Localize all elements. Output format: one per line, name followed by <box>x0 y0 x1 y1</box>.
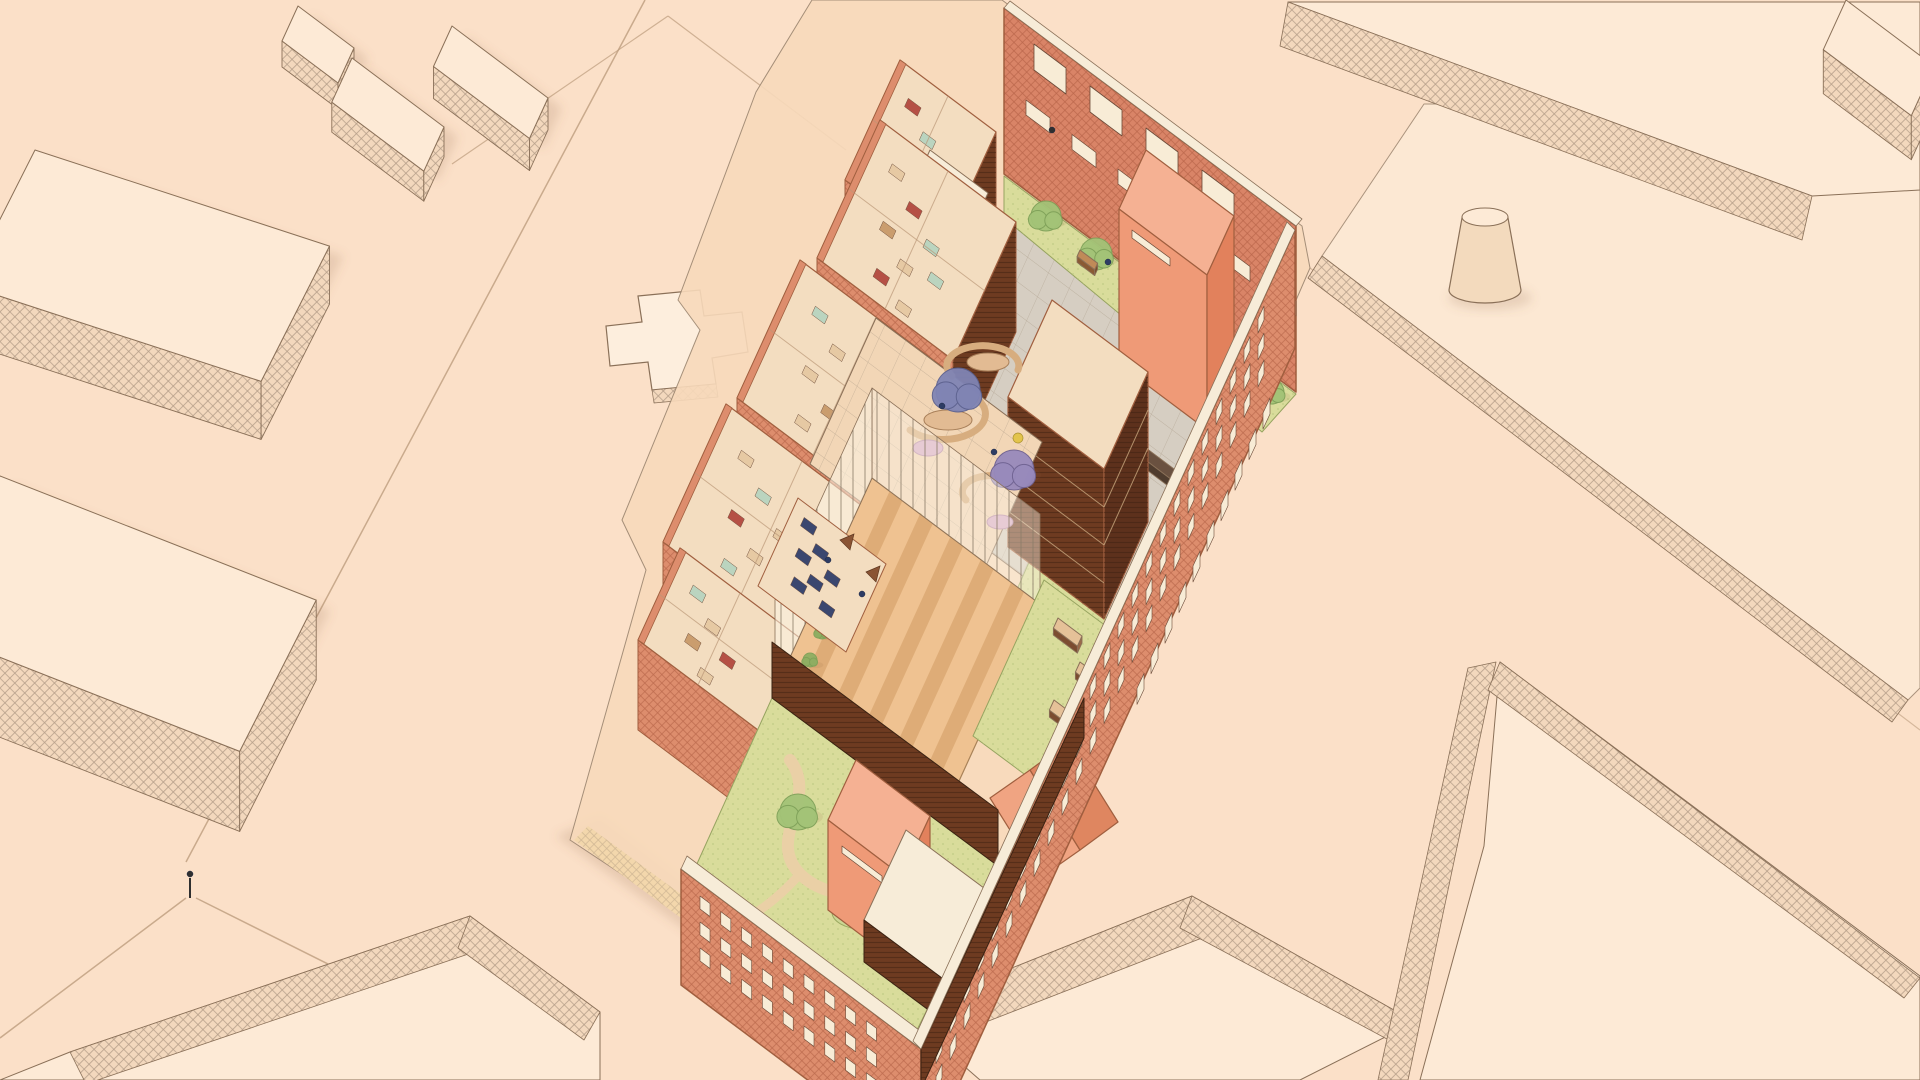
figure-terrace-1 <box>939 403 945 409</box>
scooter-terrace <box>1049 127 1055 133</box>
terrace-pit-1 <box>924 410 972 430</box>
street-line-sw1 <box>0 898 186 1038</box>
city-block-topleft-3 <box>434 26 563 171</box>
city-block-left-mid <box>0 476 330 831</box>
ottoman-yellow-1 <box>1013 433 1023 443</box>
chimney-cone-top <box>1462 208 1508 226</box>
terrace-pit-2 <box>967 353 1009 371</box>
architectural-axonometric-screenshot <box>0 0 1920 1080</box>
axonometric-scene <box>0 0 1920 1080</box>
figure-terrace-2 <box>991 449 997 455</box>
figure-terrace <box>1105 259 1111 265</box>
city-block-left-big <box>0 150 343 439</box>
figure-gym-1 <box>825 557 831 563</box>
city-block-bottomright-top <box>1420 662 1920 1080</box>
street-lamp-head <box>187 871 193 877</box>
scene-root <box>0 0 1920 1080</box>
figure-gym-2 <box>859 591 865 597</box>
